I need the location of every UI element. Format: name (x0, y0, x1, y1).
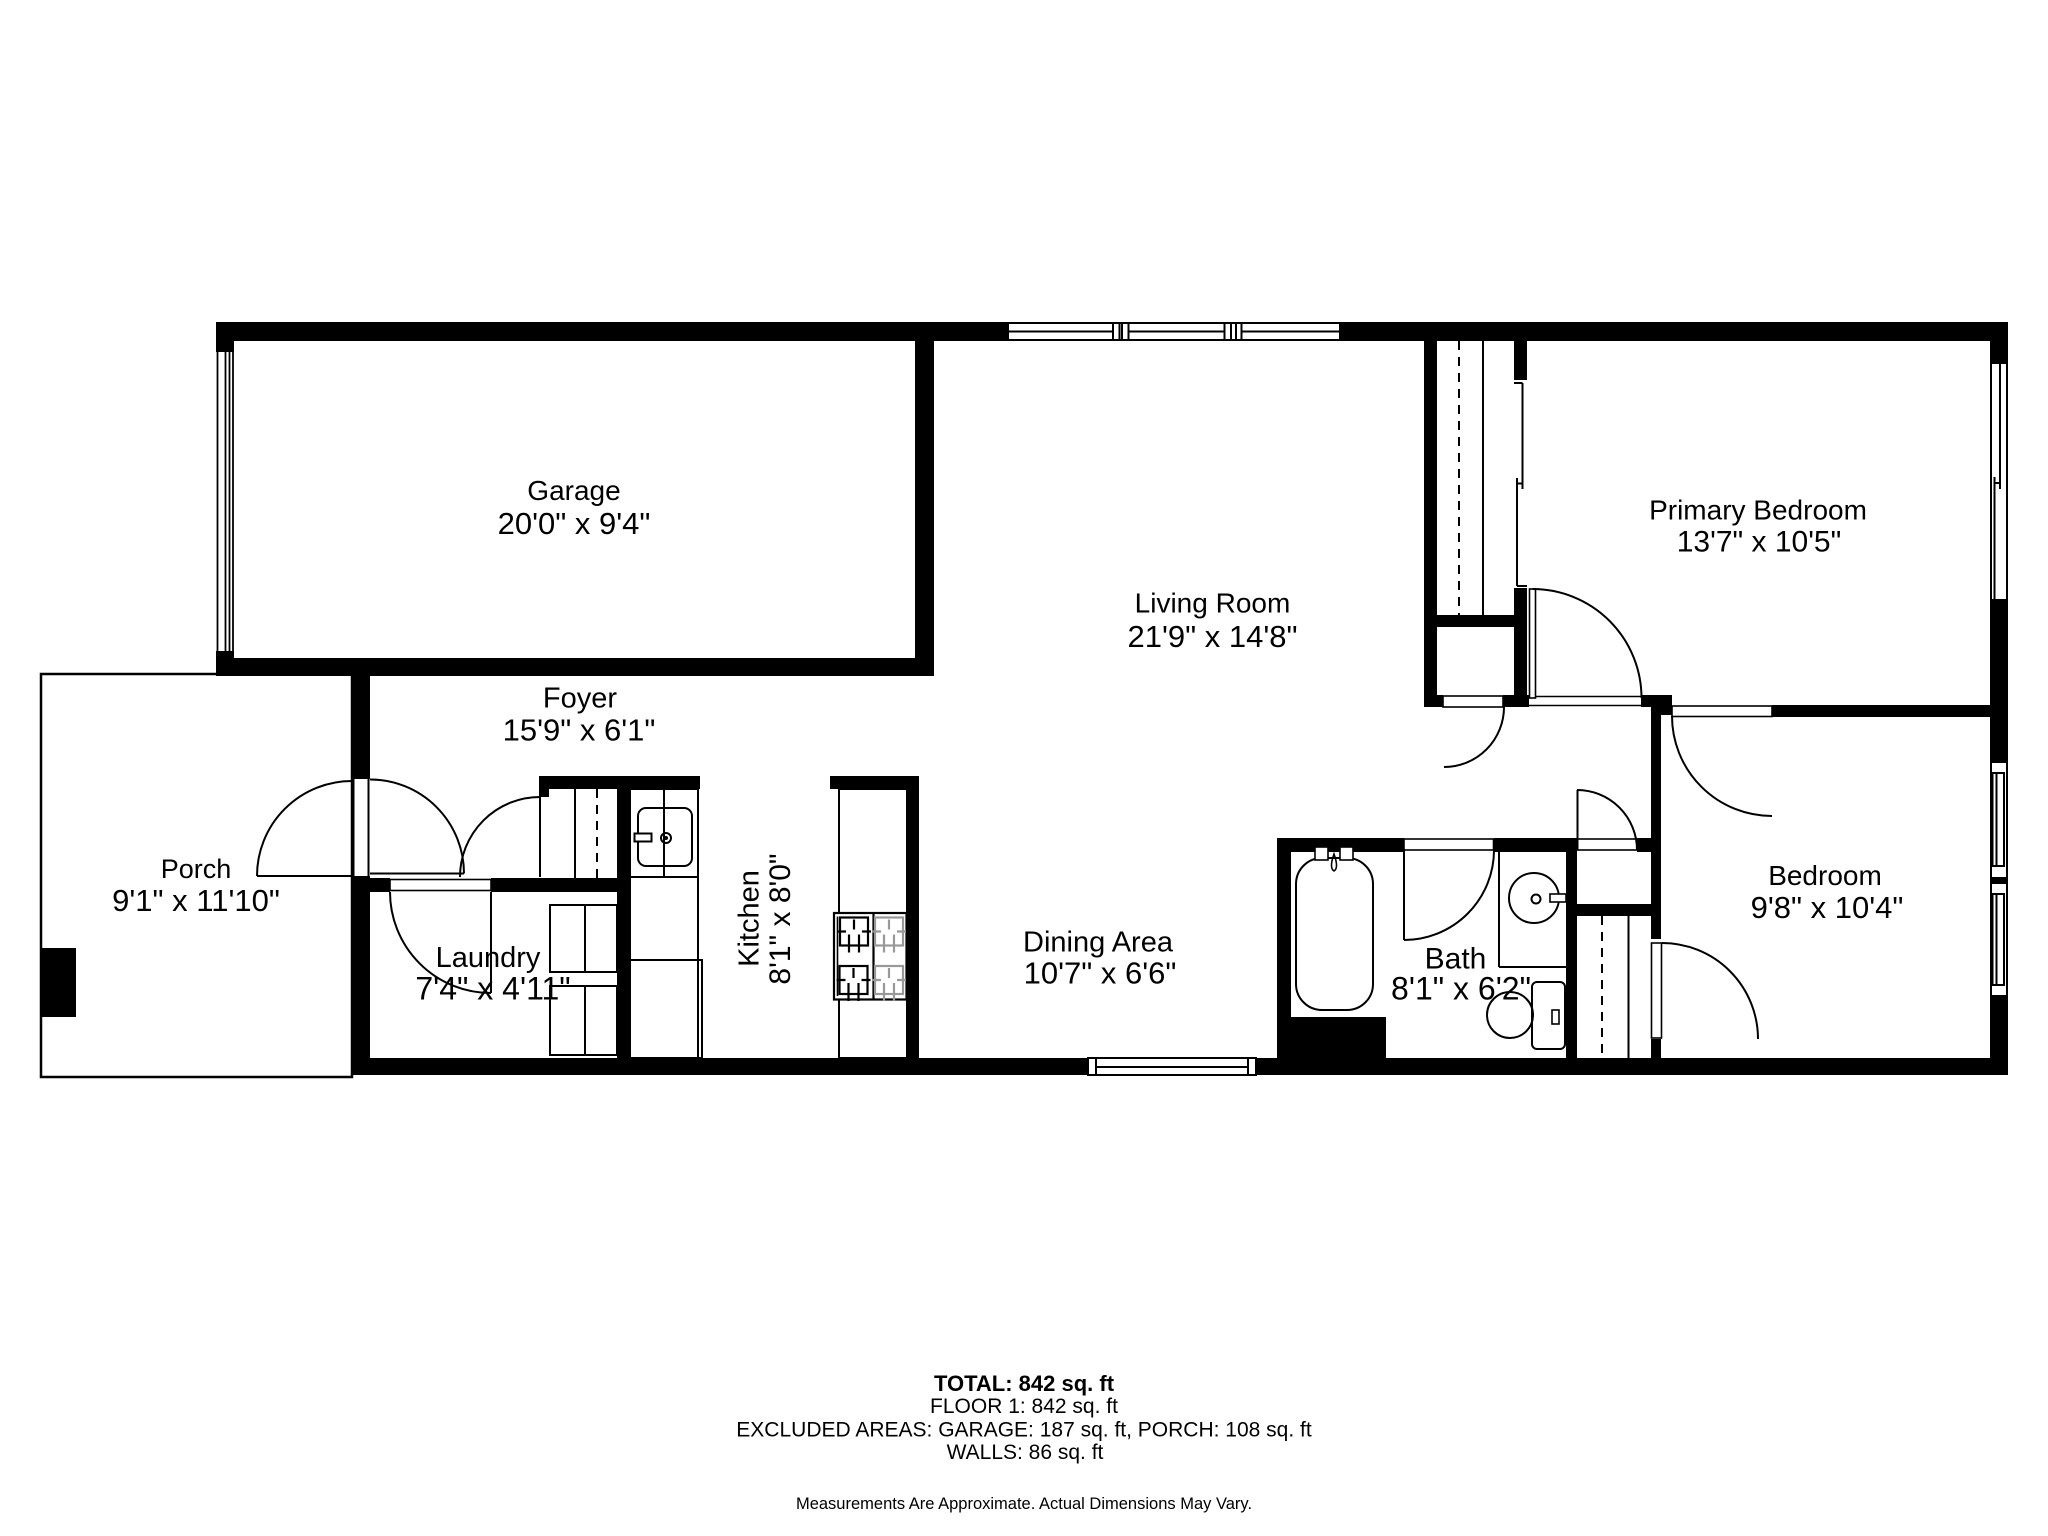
svg-text:Foyer: Foyer (543, 683, 617, 715)
svg-text:EXCLUDED AREAS: GARAGE: 187 sq: EXCLUDED AREAS: GARAGE: 187 sq. ft, PORC… (736, 1419, 1312, 1442)
svg-text:Laundry: Laundry (436, 942, 541, 974)
svg-text:Measurements Are Approximate.: Measurements Are Approximate. Actual Dim… (796, 1495, 1252, 1513)
svg-text:Primary Bedroom: Primary Bedroom (1649, 495, 1867, 526)
svg-text:10'7" x 6'6": 10'7" x 6'6" (1024, 956, 1177, 991)
svg-text:8'1" x 8'0": 8'1" x 8'0" (764, 853, 797, 984)
svg-text:WALLS: 86 sq. ft: WALLS: 86 sq. ft (947, 1441, 1104, 1464)
svg-text:Kitchen: Kitchen (734, 870, 766, 967)
svg-text:Living Room: Living Room (1135, 588, 1291, 619)
svg-text:7'4" x 4'11": 7'4" x 4'11" (415, 971, 570, 1007)
svg-text:TOTAL: 842 sq. ft: TOTAL: 842 sq. ft (934, 1371, 1115, 1396)
svg-text:13'7" x 10'5": 13'7" x 10'5" (1677, 526, 1842, 559)
svg-text:Bedroom: Bedroom (1768, 860, 1882, 891)
svg-text:15'9" x 6'1": 15'9" x 6'1" (503, 713, 656, 748)
svg-text:20'0" x 9'4": 20'0" x 9'4" (498, 506, 651, 541)
svg-text:Dining Area: Dining Area (1023, 927, 1174, 959)
svg-text:Garage: Garage (527, 475, 620, 506)
svg-text:21'9" x 14'8": 21'9" x 14'8" (1127, 619, 1297, 654)
svg-text:FLOOR 1: 842 sq. ft: FLOOR 1: 842 sq. ft (930, 1395, 1118, 1418)
svg-text:9'1" x 11'10": 9'1" x 11'10" (112, 883, 280, 918)
svg-text:9'8" x 10'4": 9'8" x 10'4" (1751, 890, 1904, 925)
svg-text:Porch: Porch (161, 854, 232, 884)
svg-text:8'1" x 6'2": 8'1" x 6'2" (1391, 971, 1531, 1007)
